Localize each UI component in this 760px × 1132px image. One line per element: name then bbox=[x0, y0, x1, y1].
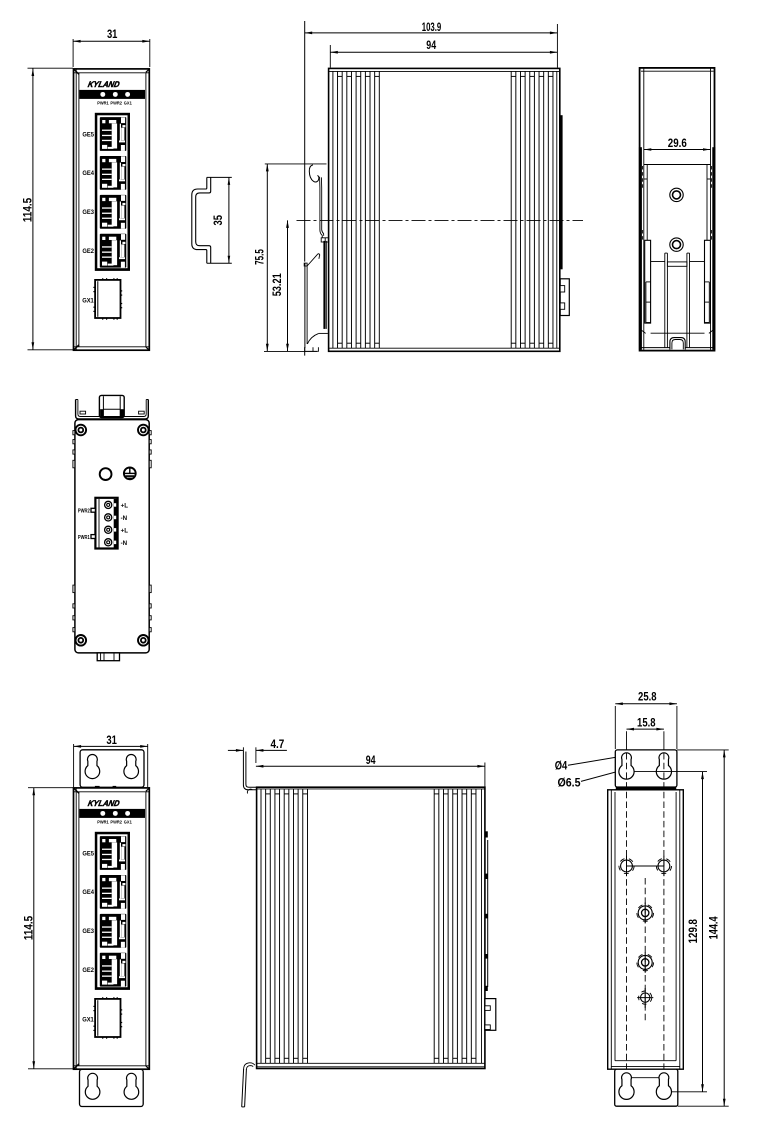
svg-text:PWR1: PWR1 bbox=[78, 535, 90, 541]
svg-text:PWR2: PWR2 bbox=[110, 820, 122, 825]
svg-text:PWR2: PWR2 bbox=[110, 101, 122, 106]
svg-text:-N: -N bbox=[121, 540, 128, 547]
svg-text:Ø6.5: Ø6.5 bbox=[558, 776, 581, 790]
svg-text:31: 31 bbox=[107, 27, 118, 41]
svg-text:31: 31 bbox=[106, 733, 117, 747]
svg-text:GE2: GE2 bbox=[82, 248, 94, 255]
svg-text:GX1: GX1 bbox=[124, 820, 132, 825]
svg-text:GE5: GE5 bbox=[82, 850, 94, 857]
svg-text:PWR1: PWR1 bbox=[97, 101, 109, 106]
svg-text:GX1: GX1 bbox=[124, 101, 132, 106]
svg-text:129.8: 129.8 bbox=[686, 919, 700, 944]
svg-text:GE4: GE4 bbox=[82, 889, 94, 896]
svg-text:PWR2: PWR2 bbox=[78, 509, 90, 515]
svg-text:29.6: 29.6 bbox=[668, 136, 687, 150]
svg-text:-N: -N bbox=[121, 515, 128, 522]
svg-text:25.8: 25.8 bbox=[638, 690, 657, 704]
svg-text:GE2: GE2 bbox=[82, 967, 94, 974]
svg-text:KYLAND: KYLAND bbox=[87, 79, 121, 89]
svg-text:94: 94 bbox=[426, 38, 436, 52]
svg-text:GX1: GX1 bbox=[82, 298, 94, 305]
svg-text:+L: +L bbox=[121, 527, 129, 534]
svg-text:75.5: 75.5 bbox=[252, 249, 266, 265]
svg-text:GE3: GE3 bbox=[82, 209, 94, 216]
svg-text:144.4: 144.4 bbox=[707, 916, 721, 939]
svg-text:103.9: 103.9 bbox=[422, 20, 442, 34]
svg-text:GE5: GE5 bbox=[82, 131, 94, 138]
svg-text:Ø4: Ø4 bbox=[555, 758, 568, 772]
svg-text:GX1: GX1 bbox=[82, 1017, 94, 1024]
svg-text:35: 35 bbox=[211, 215, 225, 226]
svg-text:53.21: 53.21 bbox=[270, 273, 284, 296]
svg-text:GE3: GE3 bbox=[82, 928, 94, 935]
svg-text:GE4: GE4 bbox=[82, 170, 94, 177]
svg-text:94: 94 bbox=[366, 753, 376, 767]
svg-text:PWR1: PWR1 bbox=[97, 820, 109, 825]
svg-text:15.8: 15.8 bbox=[637, 716, 656, 730]
svg-text:KYLAND: KYLAND bbox=[87, 798, 121, 808]
svg-text:4.7: 4.7 bbox=[271, 737, 285, 751]
svg-text:+L: +L bbox=[121, 502, 129, 509]
